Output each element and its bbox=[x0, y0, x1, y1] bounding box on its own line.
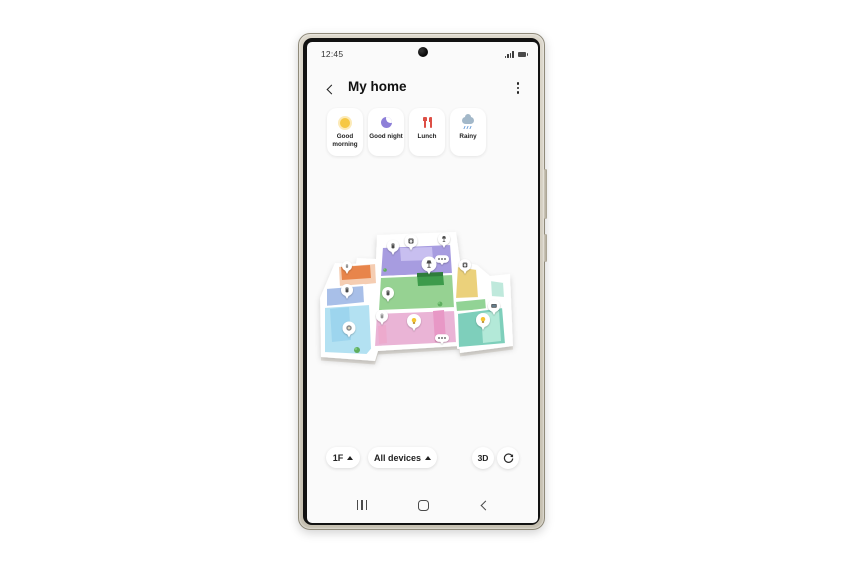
back-chevron-icon bbox=[480, 500, 490, 510]
scene-label: Good morning bbox=[327, 133, 363, 148]
view-3d-label: 3D bbox=[478, 453, 489, 463]
up-triangle-icon bbox=[347, 456, 353, 460]
more-options-button[interactable] bbox=[512, 80, 524, 96]
scene-shortcuts: Good morning Good night Lunch Rainy bbox=[327, 108, 486, 156]
scene-card-good-night[interactable]: Good night bbox=[368, 108, 404, 156]
up-triangle-icon bbox=[425, 456, 431, 460]
page-canvas: 12:45 My home bbox=[0, 0, 845, 563]
rain-cloud-icon bbox=[462, 117, 474, 124]
home-button[interactable] bbox=[408, 490, 438, 520]
scene-card-lunch[interactable]: Lunch bbox=[409, 108, 445, 156]
status-bar: 12:45 bbox=[307, 42, 538, 64]
scene-label: Lunch bbox=[418, 133, 437, 141]
rotate-view-button[interactable] bbox=[497, 447, 519, 469]
scene-card-rainy[interactable]: Rainy bbox=[450, 108, 486, 156]
floor-label: 1F bbox=[333, 453, 344, 463]
clock-text: 12:45 bbox=[321, 49, 343, 59]
app-header: My home bbox=[307, 72, 538, 102]
floorplan-map[interactable] bbox=[314, 221, 532, 373]
home-icon bbox=[418, 500, 429, 511]
floor-selector-button[interactable]: 1F bbox=[326, 447, 360, 468]
crescent-moon-icon bbox=[381, 117, 392, 128]
view-3d-button[interactable]: 3D bbox=[472, 447, 494, 469]
raindrops-icon bbox=[463, 126, 466, 129]
front-camera-cutout bbox=[418, 47, 428, 57]
scene-card-good-morning[interactable]: Good morning bbox=[327, 108, 363, 156]
room-kitchen-yellow bbox=[455, 266, 479, 299]
phone-screen: 12:45 My home bbox=[307, 42, 538, 523]
recents-button[interactable] bbox=[347, 490, 377, 520]
power-button[interactable] bbox=[544, 234, 547, 262]
rotate-arrow-icon bbox=[502, 452, 515, 465]
volume-button[interactable] bbox=[544, 169, 547, 219]
map-controls: 1F All devices 3D bbox=[307, 447, 538, 471]
scene-label: Good night bbox=[369, 133, 403, 141]
page-title: My home bbox=[348, 79, 407, 94]
sun-icon bbox=[340, 118, 350, 128]
system-nav-bar bbox=[307, 490, 538, 523]
device-filter-button[interactable]: All devices bbox=[368, 447, 437, 468]
back-nav-button[interactable] bbox=[470, 490, 500, 520]
floorplan-content bbox=[320, 232, 513, 365]
battery-icon bbox=[518, 52, 526, 57]
fork-and-knife-icon bbox=[423, 117, 432, 128]
devices-label: All devices bbox=[374, 453, 421, 463]
scene-label: Rainy bbox=[459, 133, 476, 141]
furniture-bench-pink bbox=[378, 325, 387, 344]
recents-icon bbox=[357, 500, 368, 510]
back-button[interactable] bbox=[324, 82, 338, 96]
room-closet-mint bbox=[490, 280, 505, 298]
chevron-left-icon bbox=[326, 84, 336, 94]
signal-bars-icon bbox=[505, 50, 514, 58]
phone-frame: 12:45 My home bbox=[298, 33, 545, 530]
kebab-menu-icon bbox=[517, 82, 520, 85]
